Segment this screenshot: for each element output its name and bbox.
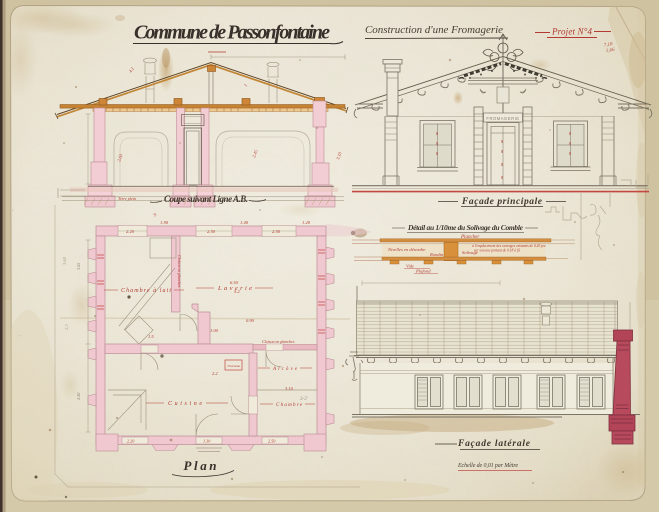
svg-text:1.00: 1.00 [210, 328, 219, 333]
svg-text:Rondin: Rondin [429, 252, 444, 257]
svg-text:Projet N°4: Projet N°4 [551, 27, 593, 37]
svg-text:sur son axe portant de 0.18 à: sur son axe portant de 0.18 à fil [474, 249, 520, 253]
svg-text:1.20: 1.20 [302, 220, 311, 225]
svg-text:Plan: Plan [184, 458, 217, 473]
svg-text:à l'emplacement des ouvrages e: à l'emplacement des ouvrages existants d… [472, 244, 546, 248]
svg-text:1.90: 1.90 [160, 220, 169, 225]
svg-text:Cloison en planches: Cloison en planches [262, 339, 295, 344]
svg-text:Construction d'une Fromagerie: Construction d'une Fromagerie [365, 24, 503, 36]
svg-text:5.2: 5.2 [234, 289, 240, 294]
svg-text:1.30: 1.30 [203, 439, 211, 444]
svg-text:3.10: 3.10 [285, 386, 294, 391]
svg-text:1.40: 1.40 [240, 220, 249, 225]
svg-text:Nivelles en désordre: Nivelles en désordre [387, 247, 425, 252]
svg-text:2.3: 2.3 [64, 324, 69, 330]
svg-text:Façade latérale: Façade latérale [457, 439, 531, 449]
svg-text:2.20: 2.20 [127, 439, 135, 444]
svg-text:Commune de Passonfontaine: Commune de Passonfontaine [134, 22, 330, 44]
svg-text:2.20: 2.20 [126, 229, 135, 234]
svg-text:3-3': 3-3' [300, 397, 309, 402]
svg-text:2.50: 2.50 [207, 229, 216, 234]
svg-text:2.2: 2.2 [212, 371, 218, 376]
svg-text:Coupe suivant Ligne A.B.: Coupe suivant Ligne A.B. [164, 194, 248, 204]
svg-text:4.40: 4.40 [76, 392, 81, 400]
svg-text:Terre plein: Terre plein [118, 196, 136, 201]
svg-text:FROMAGERIE: FROMAGERIE [486, 116, 519, 121]
svg-text:Vide: Vide [406, 264, 414, 269]
svg-text:0.90: 0.90 [246, 318, 255, 323]
svg-text:2.50: 2.50 [268, 439, 276, 444]
svg-text:6.50: 6.50 [230, 280, 239, 285]
svg-text:Chambre à lait: Chambre à lait [121, 288, 171, 294]
svg-text:Echelle de 0,01 par Mètre: Echelle de 0,01 par Mètre [457, 463, 518, 469]
svg-text:Détail au 1/10me du Solivage d: Détail au 1/10me du Solivage du Comble [407, 223, 524, 232]
svg-text:1.5: 1.5 [148, 334, 154, 339]
svg-text:Plafond: Plafond [415, 269, 431, 274]
svg-text:Façade principale: Façade principale [461, 197, 543, 207]
svg-text:3.65: 3.65 [76, 263, 81, 270]
svg-text:2.50: 2.50 [272, 229, 281, 234]
svg-text:3.60: 3.60 [62, 256, 67, 265]
svg-text:Fourneau: Fourneau [227, 364, 241, 368]
svg-text:Cloison en planches: Cloison en planches [177, 255, 182, 288]
